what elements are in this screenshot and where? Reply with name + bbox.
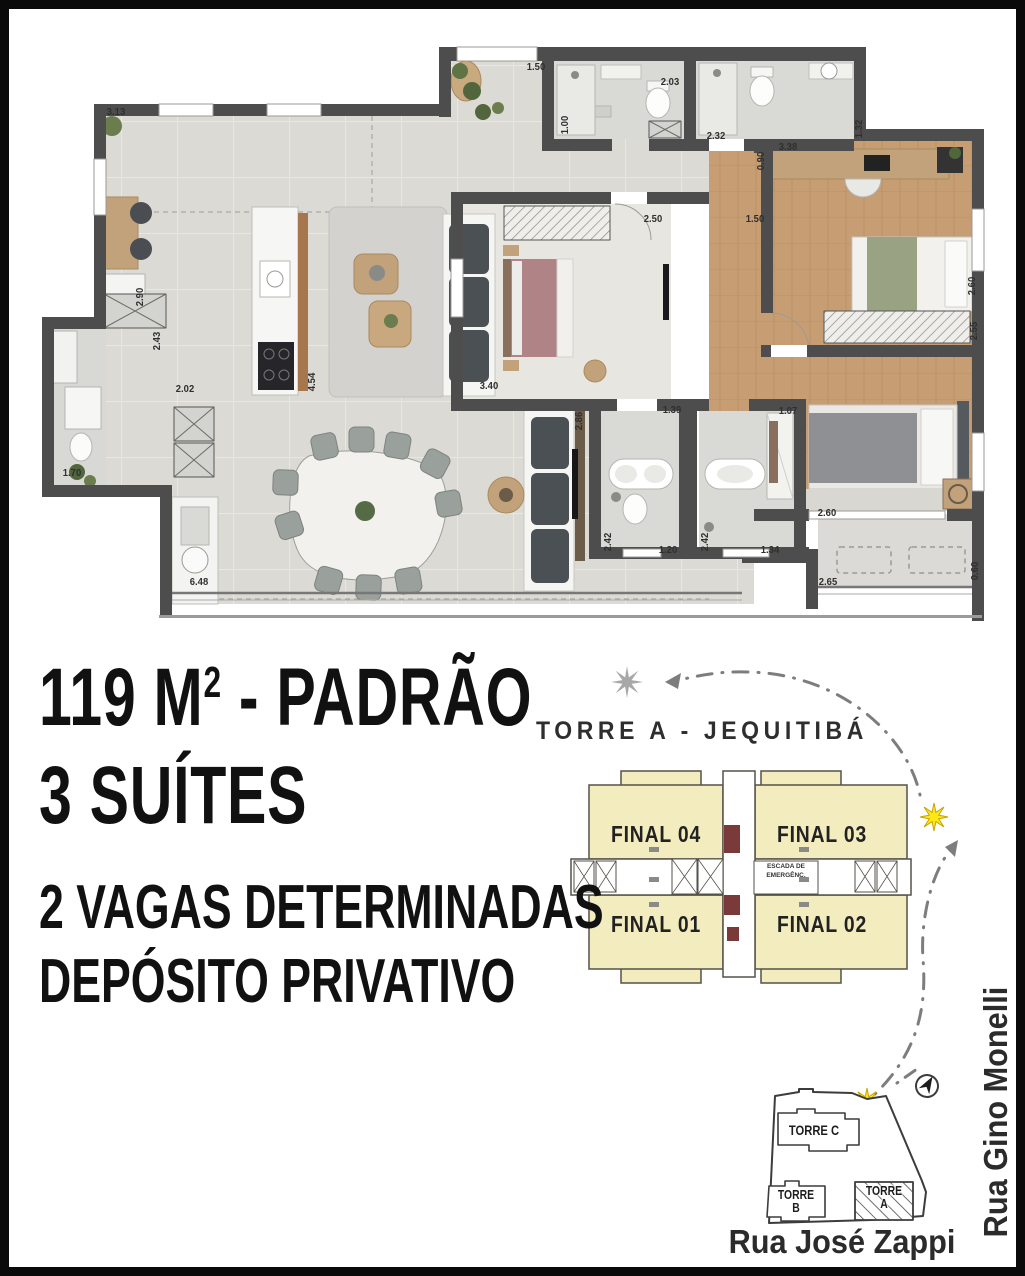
dimension-label: 2.32 [707, 130, 725, 142]
dimension-label: 2.65 [819, 576, 837, 588]
headline-storage: DEPÓSITO PRIVATIVO [39, 951, 604, 1013]
dimension-label: 1.50 [527, 61, 545, 73]
dimension-label: 6.48 [190, 576, 208, 588]
dimension-label: 1.32 [853, 120, 865, 138]
dimension-label: 4.54 [306, 373, 318, 391]
dimension-label: 2.42 [602, 533, 614, 551]
tower-b-label: TORRE B [777, 1188, 815, 1215]
dimension-label: 2.60 [966, 277, 978, 295]
dimension-label: 2.55 [968, 322, 980, 340]
dimension-label: 1.00 [559, 116, 571, 134]
street-label-bottom: Rua José Zappi [712, 1223, 972, 1261]
street-label-right: Rua Gino Monelli [977, 987, 1015, 1238]
dimension-label: 1.20 [659, 544, 677, 556]
tower-a-label: TORRE A [863, 1184, 905, 1211]
dimension-label: 2.60 [818, 507, 836, 519]
dimension-label: 3.38 [779, 141, 797, 153]
dimension-label: 1.39 [663, 404, 681, 416]
tower-c-label: TORRE C [787, 1123, 841, 1137]
unit-final-01: FINAL 01 [601, 911, 710, 938]
headline-parking: 2 VAGAS DETERMINADAS [39, 877, 604, 939]
dimension-label: 1.07 [779, 405, 797, 417]
plant-icon [949, 147, 961, 159]
dimension-label: 2.42 [699, 533, 711, 551]
dimension-label: 1.50 [746, 213, 764, 225]
plant-icon [452, 63, 468, 79]
unit-final-04: FINAL 04 [601, 821, 710, 848]
dimension-label: 0.90 [755, 152, 767, 170]
dimension-label: 2.43 [151, 332, 163, 350]
dimension-label: 1.34 [761, 544, 779, 556]
dimension-label: 1.70 [63, 467, 81, 479]
dimension-label: 3.40 [480, 380, 498, 392]
unit-final-03: FINAL 03 [767, 821, 876, 848]
dimension-label: 3.13 [107, 106, 125, 118]
headline-area: 119 M2 - PADRÃO [39, 657, 604, 739]
dimension-label: 2.86 [573, 412, 585, 430]
floor-plan-graphics [9, 9, 1016, 1267]
dimension-label: 2.50 [644, 213, 662, 225]
plant-icon [475, 104, 491, 120]
plan-sheet: 3.131.501.002.032.321.320.903.382.501.50… [0, 0, 1025, 1276]
headline-suites: 3 SUÍTES [39, 755, 604, 837]
dimension-label: 2.90 [134, 288, 146, 306]
north-arrow-icon [912, 1071, 942, 1101]
plant-icon [492, 102, 504, 114]
key-plan-title: TORRE A - JEQUITIBÁ [536, 717, 868, 746]
unit-final-02: FINAL 02 [767, 911, 876, 938]
emergency-stairs-label: ESCADA DE EMERGÊNC. [753, 863, 819, 881]
dimension-label: 0.60 [969, 562, 981, 580]
plant-icon [463, 82, 481, 100]
dimension-label: 2.03 [661, 76, 679, 88]
dimension-label: 2.02 [176, 383, 194, 395]
star-icon [920, 803, 948, 831]
